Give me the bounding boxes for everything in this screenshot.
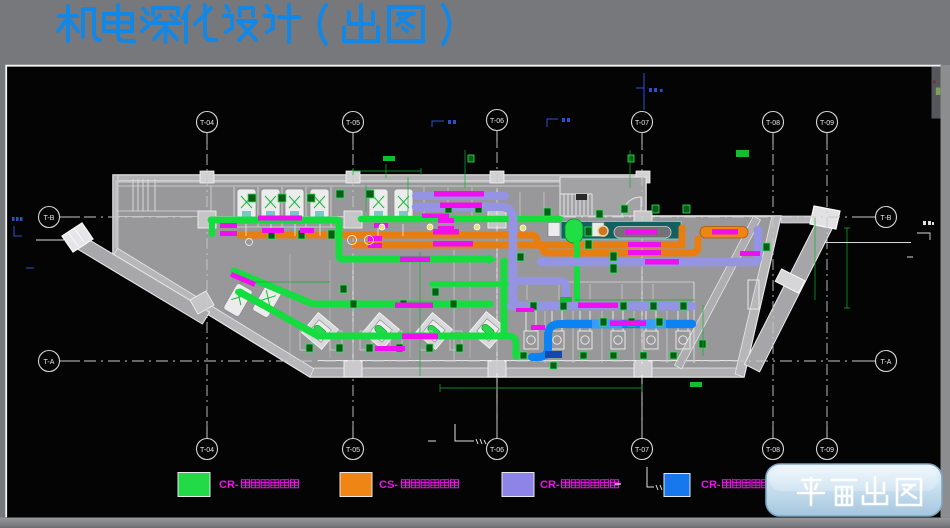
svg-text:CS-: CS- [379, 479, 398, 491]
svg-text:T-06: T-06 [490, 447, 504, 454]
svg-text:T-07: T-07 [635, 447, 649, 454]
svg-text:T-05: T-05 [346, 447, 360, 454]
svg-text:CR-: CR- [701, 479, 721, 491]
svg-text:CR-: CR- [540, 479, 560, 491]
svg-text:T-07: T-07 [635, 120, 649, 127]
svg-text:CR-: CR- [219, 479, 239, 491]
svg-text:T-09: T-09 [820, 447, 834, 454]
svg-text:T-A: T-A [881, 359, 892, 366]
svg-text:T-B: T-B [44, 215, 55, 222]
svg-text:T-06: T-06 [490, 118, 504, 125]
svg-text:T-05: T-05 [346, 120, 360, 127]
svg-text:T-B: T-B [881, 215, 892, 222]
svg-text:T-08: T-08 [766, 447, 780, 454]
svg-text:T-04: T-04 [200, 120, 214, 127]
svg-text:T-A: T-A [44, 359, 55, 366]
svg-text:T-08: T-08 [766, 120, 780, 127]
svg-text:T-09: T-09 [820, 120, 834, 127]
svg-text:T-04: T-04 [200, 447, 214, 454]
